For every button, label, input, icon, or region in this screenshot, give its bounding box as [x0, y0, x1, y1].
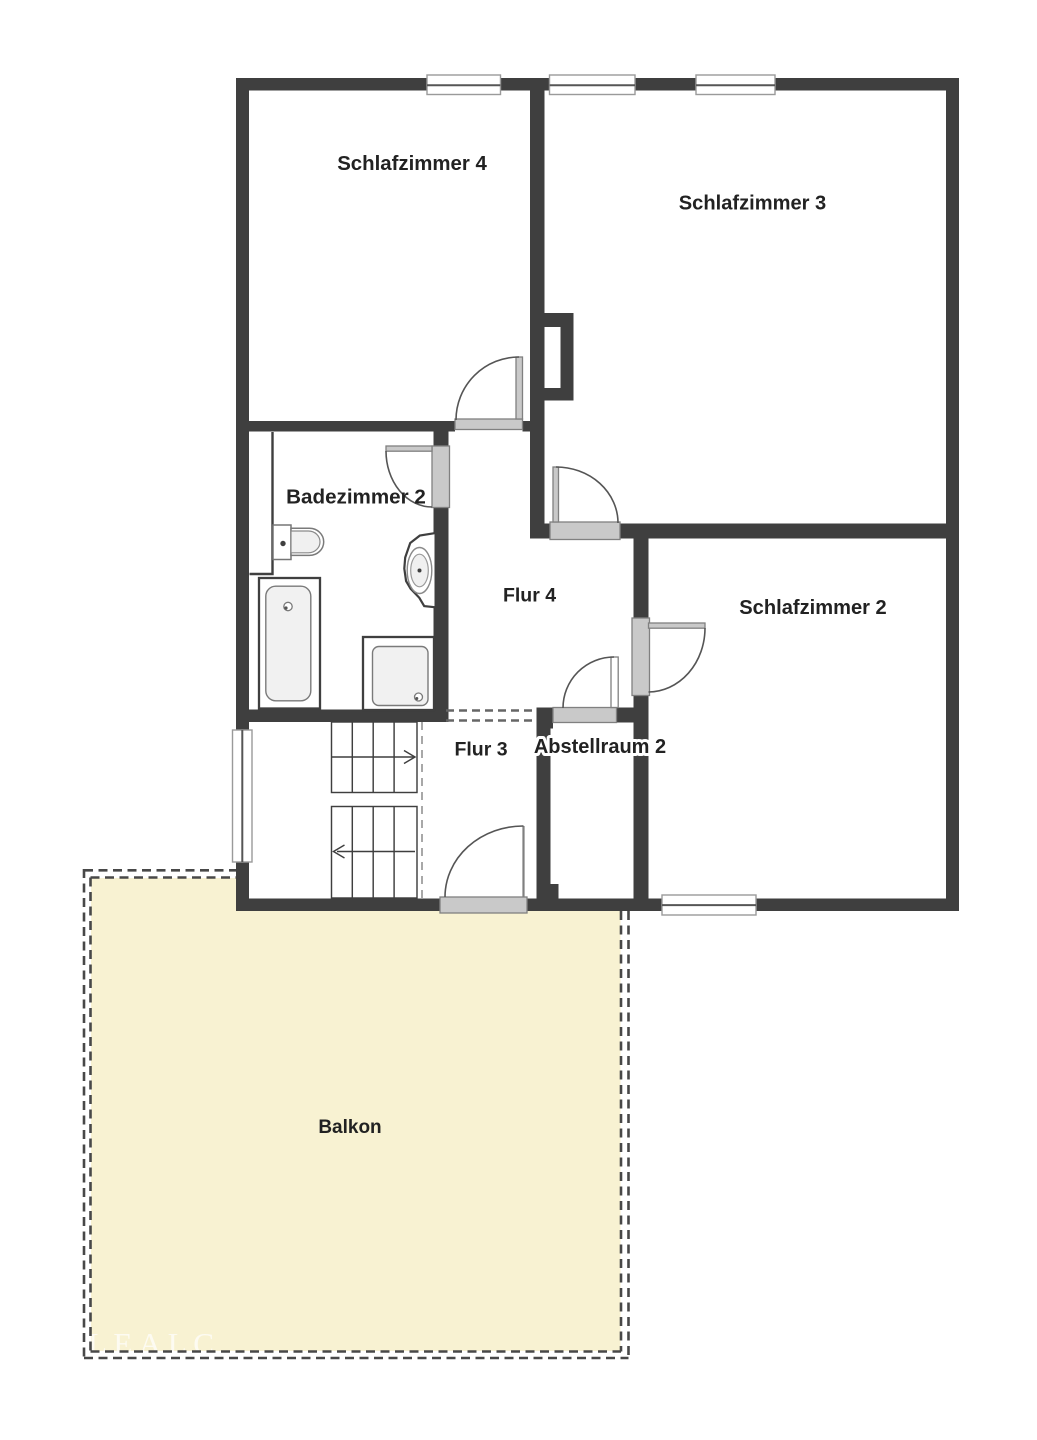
svg-text:Flur 3: Flur 3 — [454, 739, 507, 761]
svg-text:Balkon: Balkon — [318, 1117, 381, 1138]
svg-text:Schlafzimmer 2: Schlafzimmer 2 — [739, 597, 886, 619]
svg-text:Badezimmer 2: Badezimmer 2 — [286, 486, 426, 509]
svg-text:Schlafzimmer 4: Schlafzimmer 4 — [337, 153, 487, 175]
svg-text:Abstellraum 2: Abstellraum 2 — [534, 736, 666, 758]
svg-text:Schlafzimmer 3: Schlafzimmer 3 — [679, 193, 826, 215]
svg-text:LEALC: LEALC — [88, 1326, 220, 1361]
svg-text:Flur 4: Flur 4 — [503, 585, 556, 607]
